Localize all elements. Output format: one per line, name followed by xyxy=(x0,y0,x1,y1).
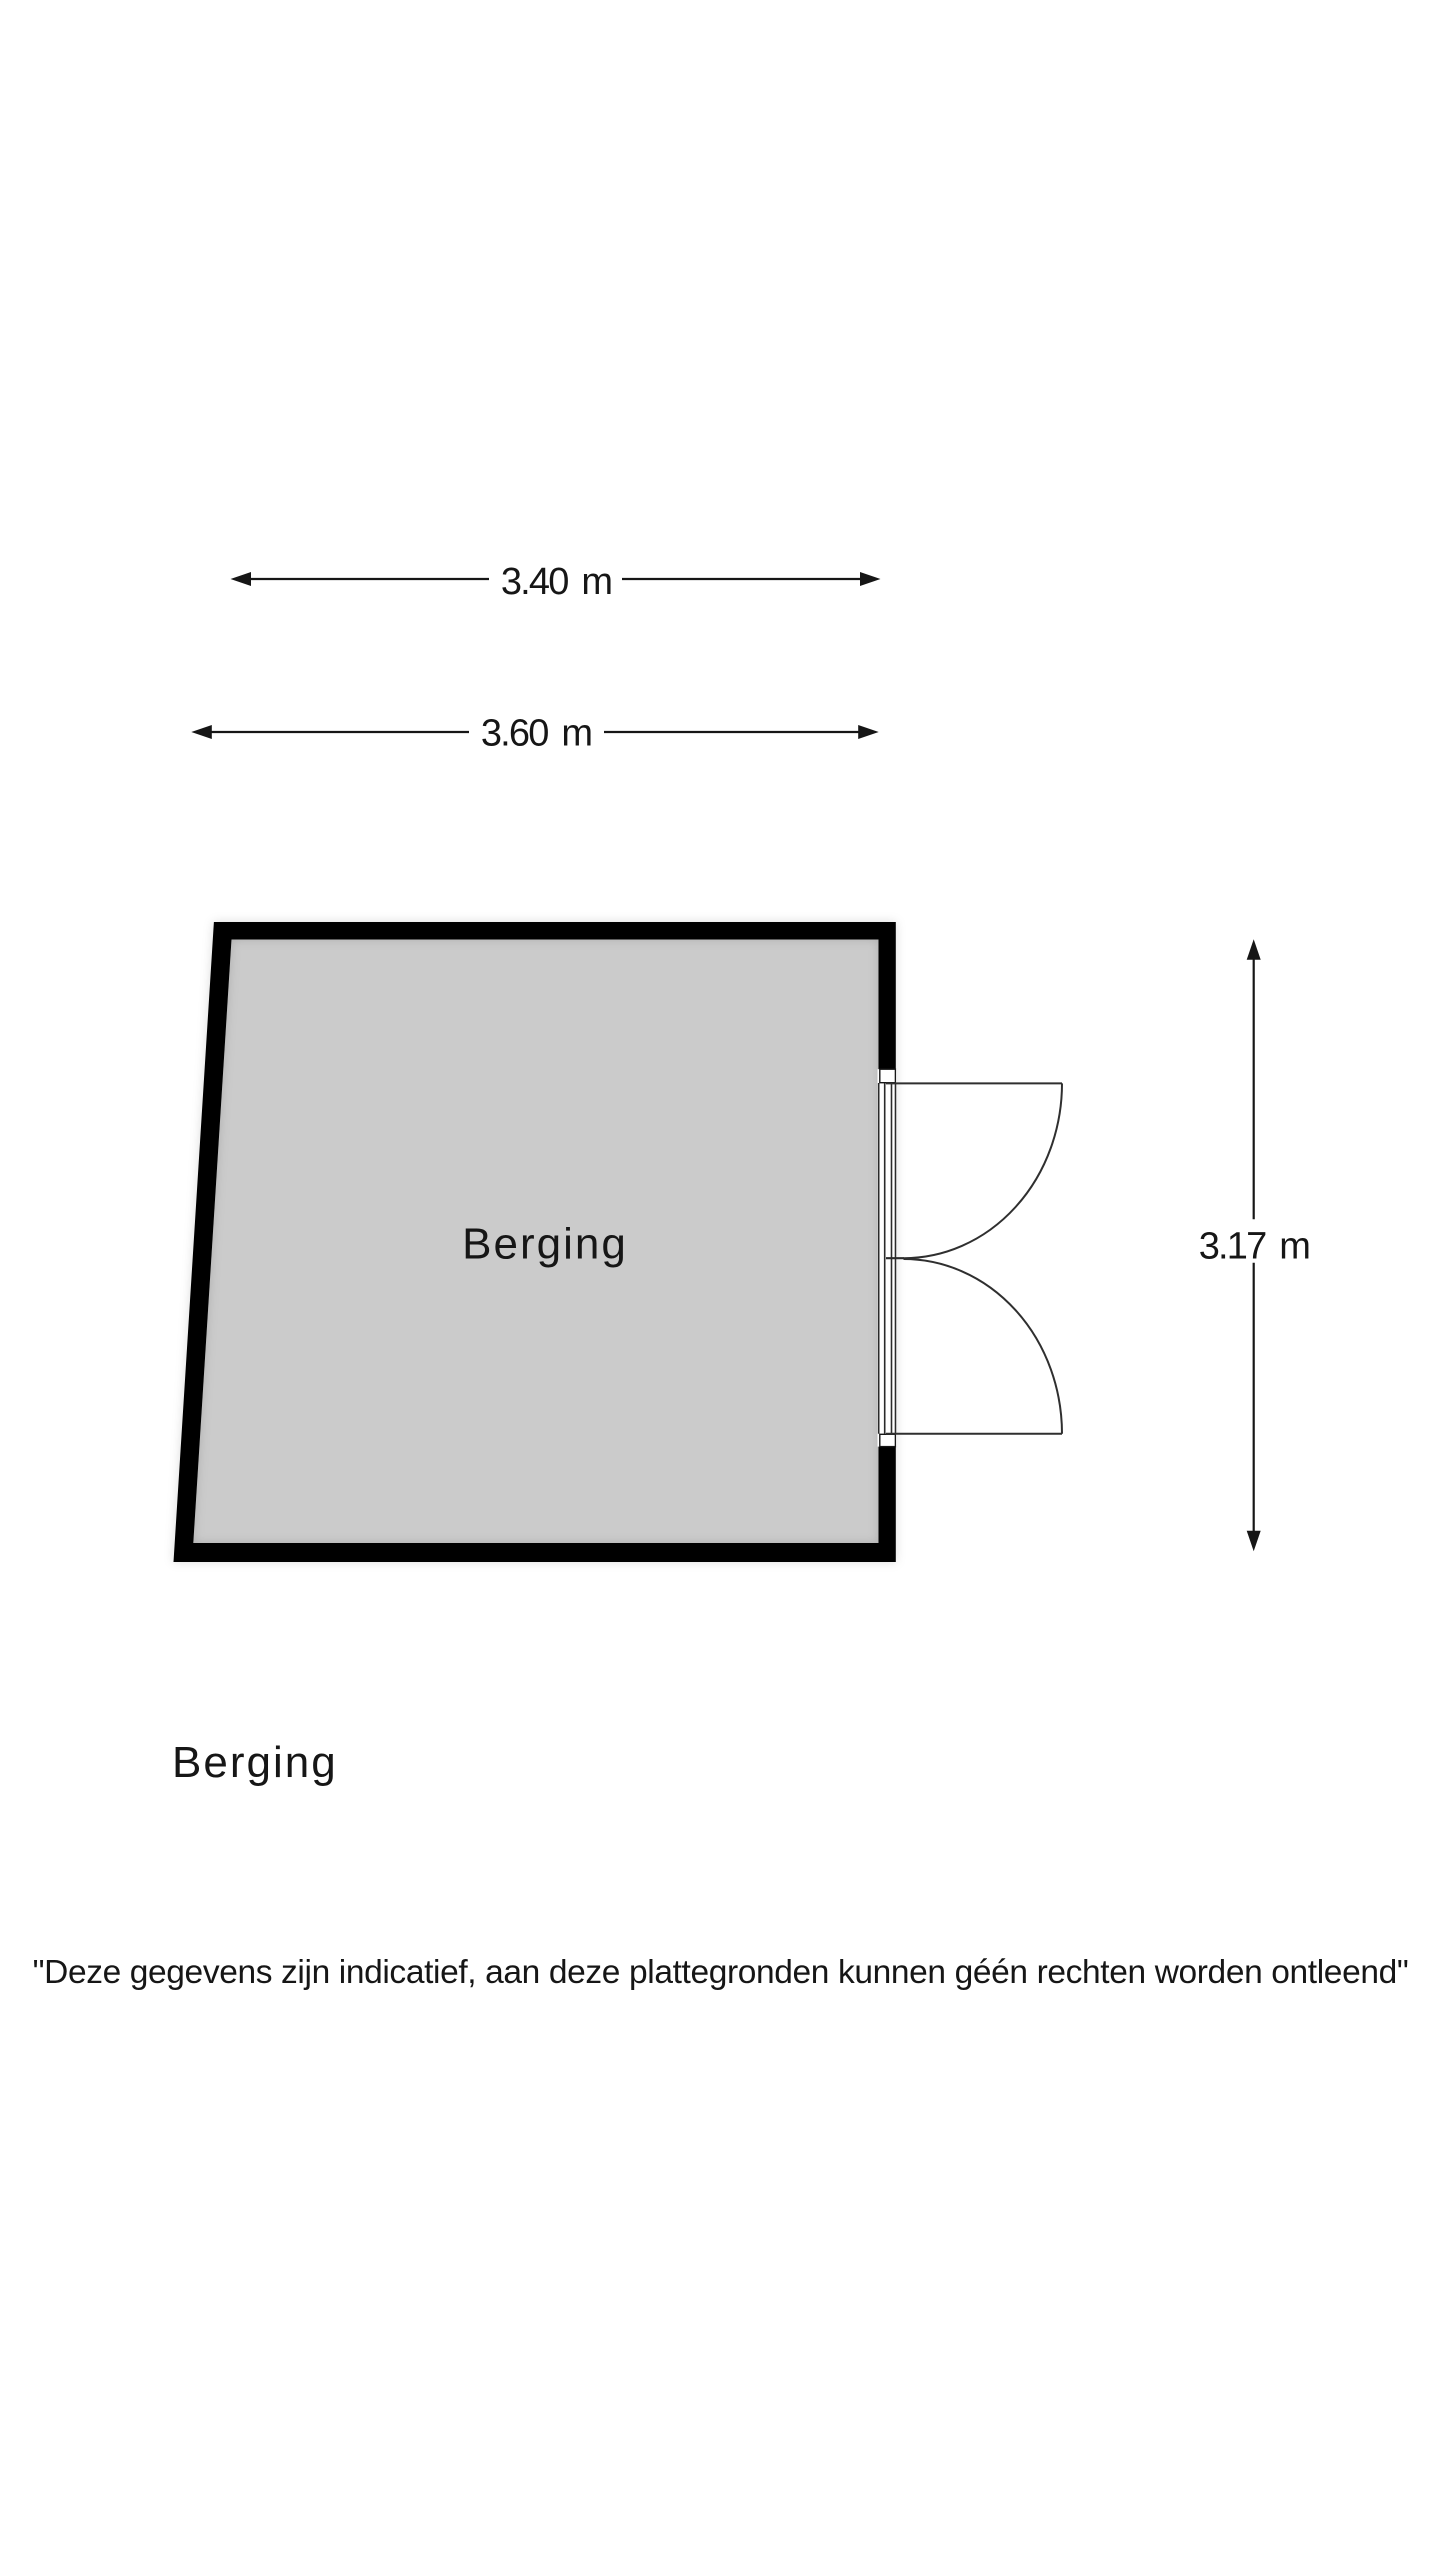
svg-text:3.40 m: 3.40 m xyxy=(501,561,612,603)
svg-text:Berging: Berging xyxy=(172,1738,338,1787)
svg-text:3.60 m: 3.60 m xyxy=(481,713,592,755)
svg-text:3.17 m: 3.17 m xyxy=(1199,1226,1310,1268)
svg-text:"Deze gegevens zijn indicatief: "Deze gegevens zijn indicatief, aan deze… xyxy=(33,1954,1409,1991)
svg-text:Berging: Berging xyxy=(462,1220,628,1269)
